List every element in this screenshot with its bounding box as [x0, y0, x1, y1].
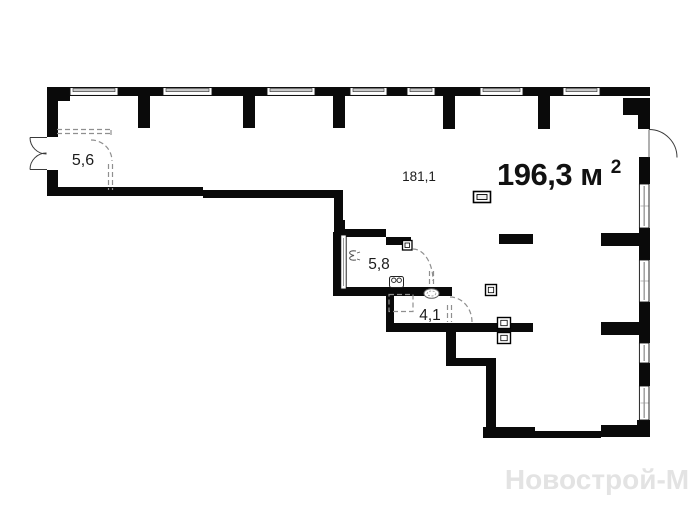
- right-wall-pier: [639, 228, 650, 260]
- entrance-double-door-swing-icon: [30, 138, 47, 170]
- dashed-door-bath: [413, 249, 434, 287]
- window-icon: [267, 88, 315, 96]
- top-right-corner: [623, 98, 650, 115]
- step-wall-vertical: [486, 366, 496, 430]
- window-icon: [163, 88, 212, 96]
- window-icon: [563, 88, 600, 96]
- bottom-right-corner: [637, 420, 650, 437]
- room-main-area-label: 181,1: [402, 169, 436, 184]
- watermark: Новострой-М: [505, 464, 689, 495]
- vent-icon: [350, 251, 360, 260]
- window-icon: [639, 343, 649, 363]
- corridor-wall: [334, 190, 343, 224]
- terrace-door-swing-icon: [649, 130, 677, 158]
- room-bath-area-label: 5,8: [368, 256, 390, 273]
- electrical-panel-icon: [474, 192, 491, 203]
- total-area-superscript: 2: [611, 157, 621, 178]
- dashed-door-swing-icon: [91, 140, 112, 161]
- sliding-door-icon: [341, 235, 346, 289]
- interior-wall-stub: [601, 322, 639, 335]
- right-wall-pier: [639, 363, 650, 386]
- column-stub: [538, 96, 550, 129]
- bottom-wall: [483, 427, 535, 438]
- labels: 5,6 181,1 5,8 4,1 196,3 м 2 Новострой-М: [72, 152, 689, 495]
- dashed-door-wc: [448, 297, 473, 322]
- window-icon: [639, 260, 649, 302]
- interior-wall-stub: [601, 233, 639, 246]
- right-wall-pier: [639, 157, 650, 184]
- window-icon: [480, 88, 523, 96]
- bottom-wall-thin: [535, 431, 601, 438]
- top-right-corner-step: [638, 115, 650, 129]
- right-wall-pier: [639, 302, 650, 343]
- wing-bottom-wall: [47, 187, 203, 196]
- floorplan-svg: 5,6 181,1 5,8 4,1 196,3 м 2 Новострой-М: [0, 0, 700, 525]
- step-wall-horizontal: [446, 358, 496, 366]
- room-hall-area-label: 5,6: [72, 152, 94, 169]
- column-stub: [138, 96, 150, 128]
- top-wall: [47, 87, 650, 96]
- window-icon: [639, 386, 649, 420]
- socket-icon: [486, 285, 497, 296]
- bath-left-wall: [333, 232, 341, 296]
- interior-wall-stub: [499, 234, 533, 244]
- room-wc-area-label: 4,1: [419, 307, 441, 324]
- window-icon: [407, 88, 435, 96]
- total-area-value: 196,3 м: [497, 157, 603, 192]
- sink-icon: [390, 277, 404, 288]
- basin-icon: [424, 289, 439, 299]
- column-stub: [443, 96, 455, 129]
- floorplan-canvas: 5,6 181,1 5,8 4,1 196,3 м 2 Новострой-М: [0, 0, 700, 525]
- socket-icon: [498, 333, 511, 344]
- window-icon: [70, 88, 118, 96]
- window-icon: [639, 184, 649, 228]
- socket-icon: [403, 241, 413, 251]
- column-stub: [243, 96, 255, 128]
- dashed-door-swing-icon: [413, 249, 433, 281]
- dashed-door-swing-icon: [450, 297, 472, 322]
- socket-icon: [498, 318, 511, 329]
- column-stub: [333, 96, 345, 128]
- wing-bottom-wall: [203, 190, 343, 198]
- walls: [47, 87, 650, 438]
- left-wall-upper: [47, 87, 58, 137]
- total-area-label: 196,3 м 2: [497, 157, 621, 192]
- window-icon: [350, 88, 387, 96]
